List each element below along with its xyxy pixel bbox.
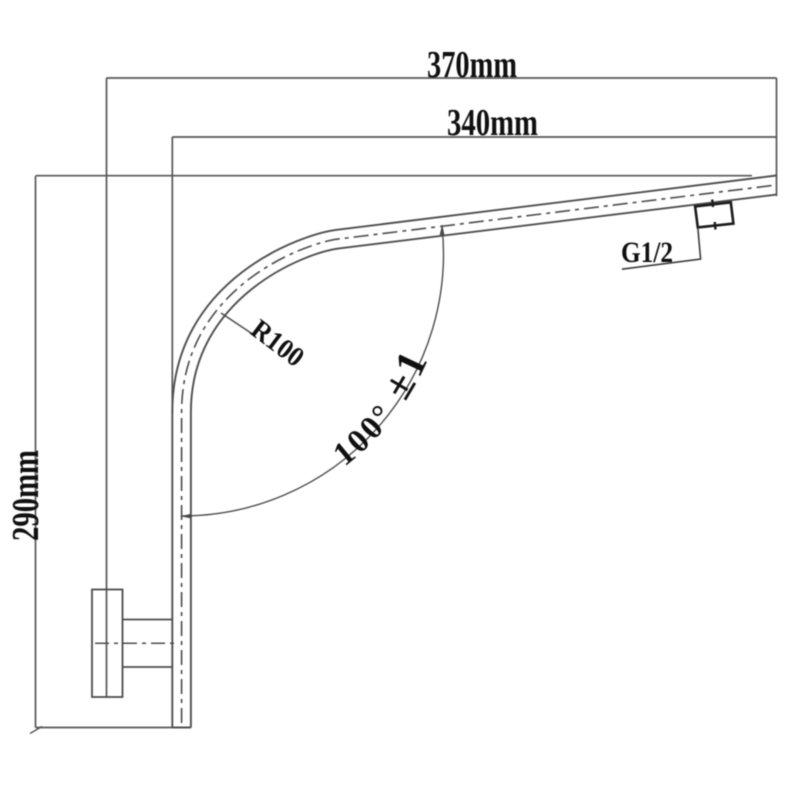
svg-text:370mm: 370mm	[427, 44, 517, 86]
svg-text:G1/2: G1/2	[621, 236, 673, 269]
svg-text:340mm: 340mm	[447, 102, 538, 144]
svg-text:290mm: 290mm	[5, 450, 47, 541]
